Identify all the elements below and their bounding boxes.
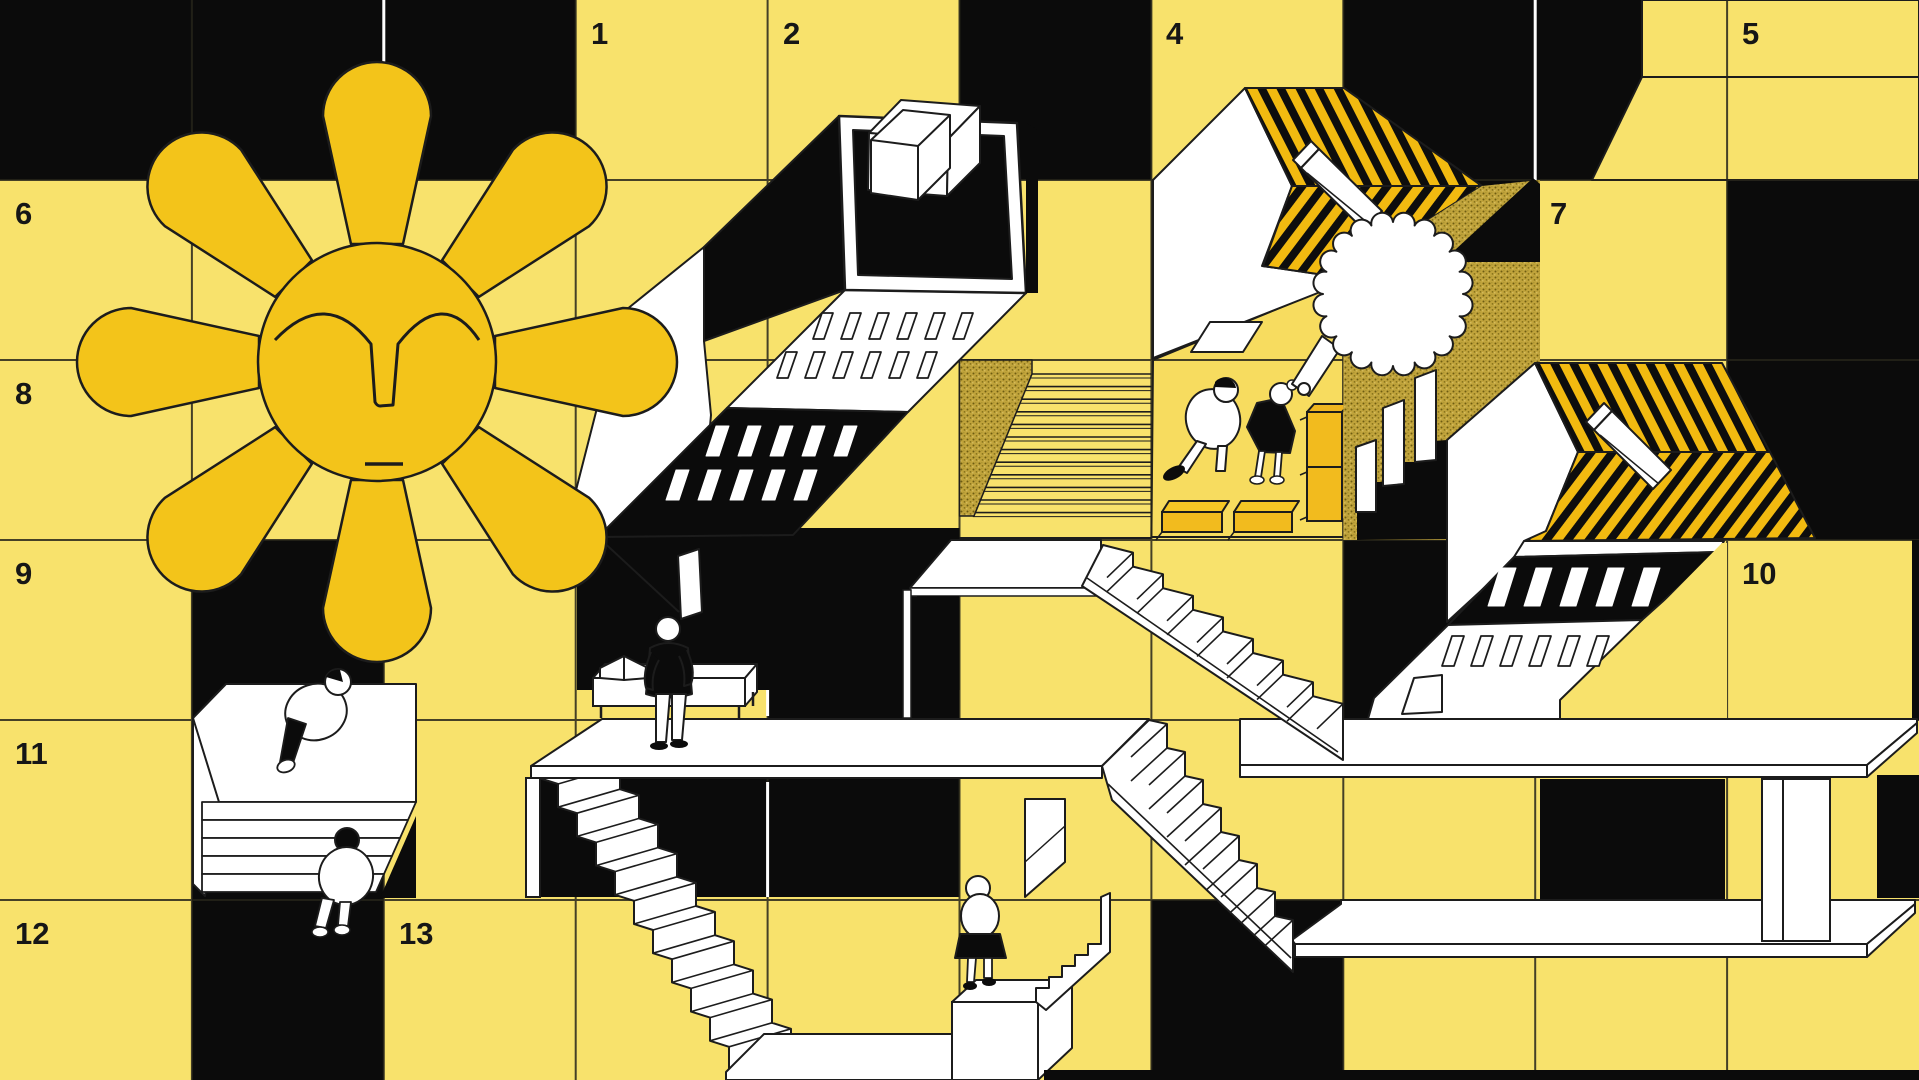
svg-text:11: 11 — [15, 736, 48, 771]
svg-text:2: 2 — [783, 16, 800, 51]
svg-text:13: 13 — [399, 916, 433, 951]
svg-text:8: 8 — [15, 376, 32, 411]
svg-text:4: 4 — [1166, 16, 1184, 51]
svg-text:12: 12 — [15, 916, 49, 951]
svg-text:7: 7 — [1550, 196, 1567, 231]
svg-text:5: 5 — [1742, 16, 1759, 51]
svg-text:10: 10 — [1742, 556, 1776, 591]
svg-text:6: 6 — [15, 196, 32, 231]
svg-text:9: 9 — [15, 556, 32, 591]
svg-text:1: 1 — [591, 16, 608, 51]
